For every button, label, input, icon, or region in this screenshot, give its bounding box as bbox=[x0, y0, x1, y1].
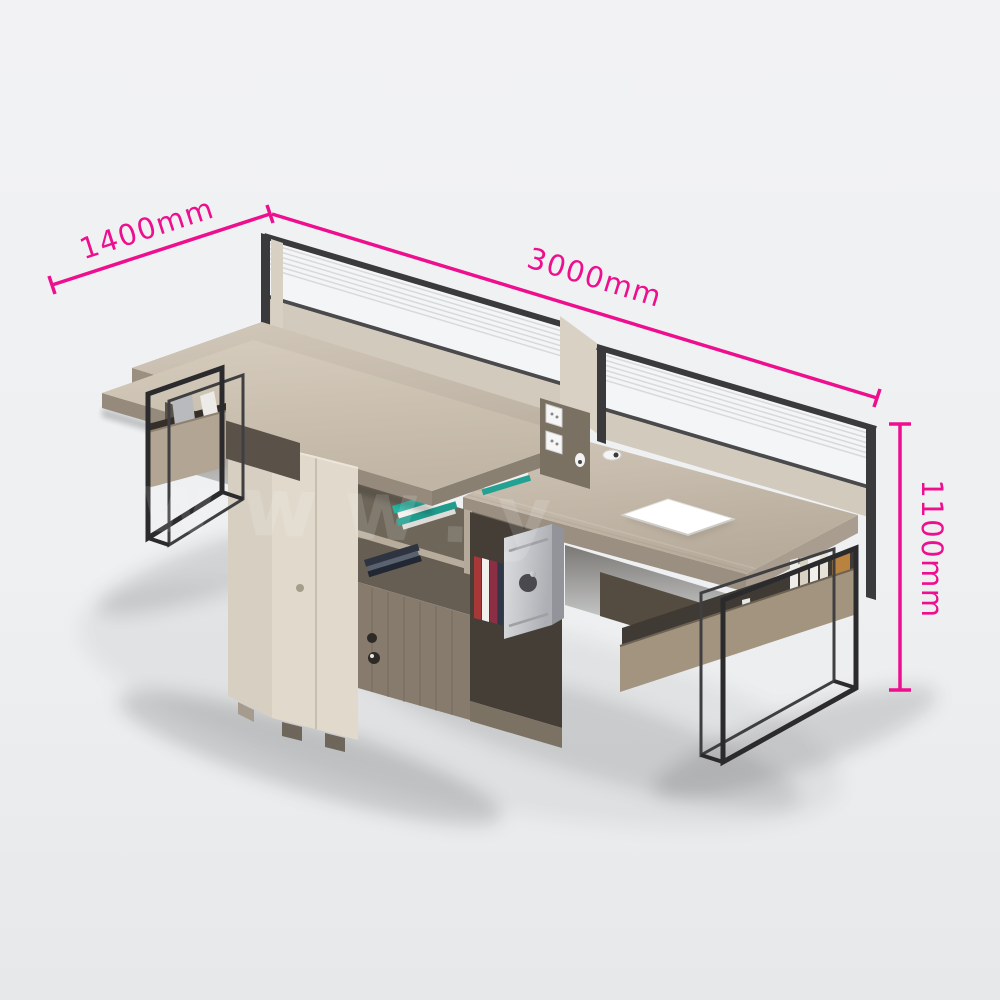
screen-left-side-return bbox=[271, 239, 283, 333]
screen-right-left-post bbox=[597, 344, 606, 444]
watermark-text: www.y bbox=[139, 456, 579, 566]
desk-grommet-hole bbox=[614, 453, 619, 458]
apple-logo-bite bbox=[530, 571, 536, 577]
door-handle-highlight bbox=[370, 654, 374, 658]
workstation-illustration: www.y 1400mm 3000mm 1100mm bbox=[0, 0, 1000, 1000]
watermark: www.y bbox=[139, 456, 579, 566]
product-image: www.y 1400mm 3000mm 1100mm bbox=[0, 0, 1000, 1000]
standing-books bbox=[474, 556, 503, 626]
screen-right-end-post bbox=[866, 424, 876, 600]
dimension-label-1100: 1100mm bbox=[915, 479, 949, 618]
screen-left-end-post bbox=[261, 233, 270, 335]
door-handle bbox=[368, 652, 380, 664]
cabinet-keyhole bbox=[296, 584, 304, 592]
door-lock bbox=[367, 633, 377, 643]
panel-grommet-hole bbox=[578, 460, 582, 464]
